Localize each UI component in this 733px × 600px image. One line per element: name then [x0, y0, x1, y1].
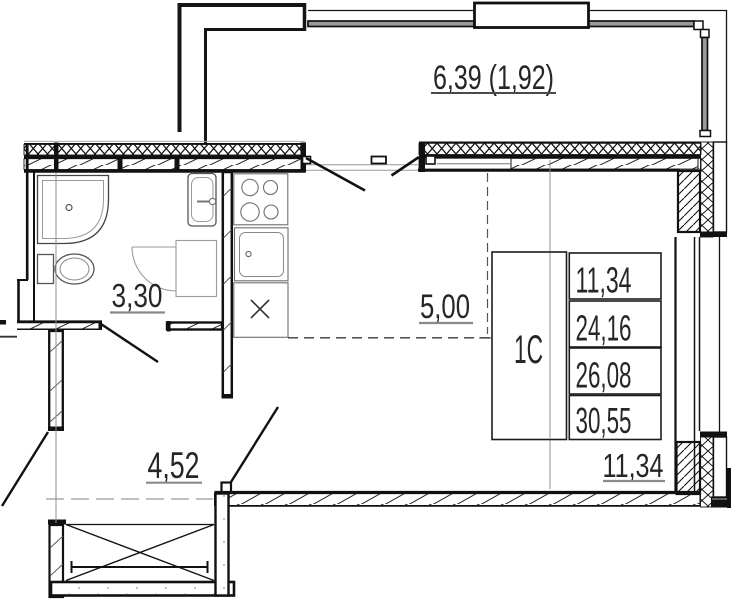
svg-text:1C: 1C — [514, 328, 543, 372]
svg-text:6,39 (1,92): 6,39 (1,92) — [433, 59, 554, 97]
svg-text:4,52: 4,52 — [148, 445, 200, 486]
svg-text:11,34: 11,34 — [576, 260, 632, 301]
svg-text:11,34: 11,34 — [603, 447, 664, 484]
svg-text:5,00: 5,00 — [420, 288, 470, 326]
svg-text:24,16: 24,16 — [576, 308, 632, 349]
svg-text:3,30: 3,30 — [112, 277, 163, 314]
svg-text:26,08: 26,08 — [576, 355, 632, 396]
svg-text:30,55: 30,55 — [576, 400, 632, 441]
